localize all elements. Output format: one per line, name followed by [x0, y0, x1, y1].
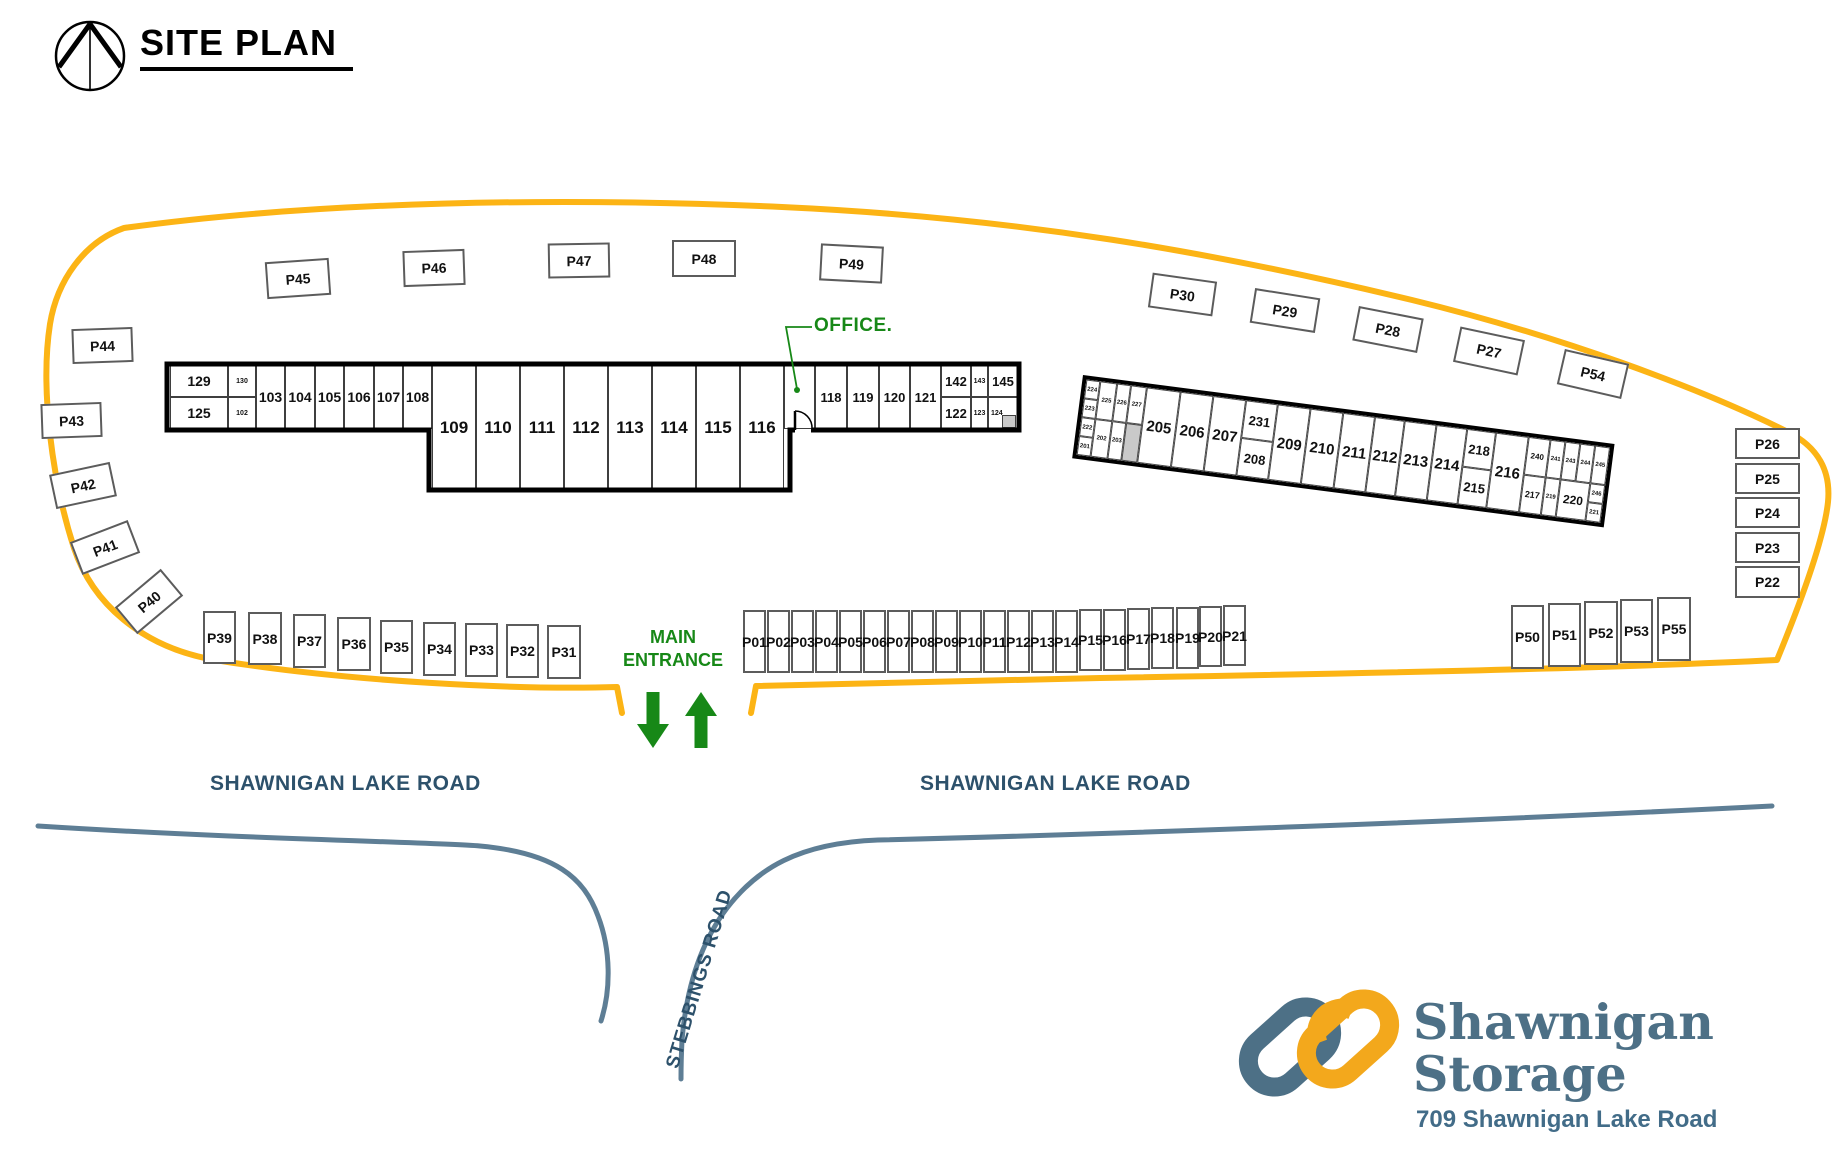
parking-stall-p20: P20	[1199, 606, 1222, 667]
parking-stall-p01: P01	[743, 610, 766, 673]
parking-stall-p33: P33	[465, 623, 498, 677]
unit-118: 118	[815, 365, 847, 429]
parking-stall-p19: P19	[1176, 607, 1199, 669]
parking-stall-p21: P21	[1223, 605, 1246, 666]
parking-stall-p07: P07	[887, 610, 910, 673]
main-entrance-line2: ENTRANCE	[598, 649, 748, 672]
parking-stall-p23: P23	[1735, 532, 1800, 563]
shawnigan-lake-road-line-left	[38, 826, 608, 1021]
parking-stall-p50: P50	[1511, 605, 1544, 669]
parking-stall-p06: P06	[863, 610, 886, 673]
parking-stall-p28: P28	[1352, 306, 1423, 353]
parking-stall-p47: P47	[548, 242, 611, 278]
parking-stall-p48: P48	[672, 240, 736, 277]
parking-stall-p49: P49	[819, 243, 884, 283]
unit-246: 246	[1588, 483, 1605, 504]
background-drawing-layer	[0, 0, 1833, 1153]
parking-stall-p02: P02	[767, 610, 790, 673]
unit-107: 107	[374, 365, 403, 429]
main-entrance-line1: MAIN	[598, 626, 748, 649]
unit-122: 122	[941, 397, 971, 429]
parking-stall-p13: P13	[1031, 610, 1054, 673]
unit-129: 129	[170, 365, 228, 397]
parking-stall-p03: P03	[791, 610, 814, 673]
parking-stall-p54: P54	[1557, 349, 1629, 399]
parking-stall-p25: P25	[1735, 463, 1800, 494]
logo-name-line1: Shawnigan	[1413, 998, 1714, 1047]
unit-108: 108	[403, 365, 432, 429]
parking-stall-p10: P10	[959, 610, 982, 673]
parking-stall-p46: P46	[402, 249, 465, 287]
unit-143: 143	[971, 365, 988, 397]
parking-stall-p37: P37	[293, 614, 326, 668]
shaded-cell	[1002, 415, 1016, 428]
parking-stall-p42: P42	[49, 462, 117, 509]
parking-stall-p51: P51	[1548, 603, 1581, 667]
building-b: 2242232222012252022262032272052062072312…	[1072, 375, 1614, 527]
parking-stall-p36: P36	[337, 617, 371, 671]
parking-stall-p30: P30	[1148, 273, 1217, 317]
parking-stall-p34: P34	[423, 622, 456, 676]
parking-stall-p05: P05	[839, 610, 862, 673]
parking-stall-p27: P27	[1453, 327, 1525, 376]
north-compass-icon	[56, 22, 124, 90]
unit-106: 106	[344, 365, 374, 429]
unit-104: 104	[285, 365, 315, 429]
parking-stall-p18: P18	[1151, 607, 1174, 669]
parking-stall-p29: P29	[1250, 288, 1321, 333]
site-plan-canvas: 2242232222012252022262032272052062072312…	[0, 0, 1833, 1153]
unit-115: 115	[696, 365, 740, 489]
parking-stall-p52: P52	[1584, 601, 1618, 665]
parking-stall-p11: P11	[983, 610, 1006, 673]
page-title: SITE PLAN	[140, 22, 353, 71]
parking-stall-p31: P31	[547, 625, 581, 679]
office-label: OFFICE.	[814, 315, 892, 337]
unit-119: 119	[847, 365, 879, 429]
unit-113: 113	[608, 365, 652, 489]
parking-stall-p45: P45	[265, 258, 331, 299]
parking-stall-p35: P35	[380, 620, 413, 674]
parking-stall-p53: P53	[1620, 599, 1653, 663]
parking-stall-p08: P08	[911, 610, 934, 673]
unit-103: 103	[256, 365, 285, 429]
unit-109: 109	[432, 365, 476, 489]
parking-stall-p17: P17	[1127, 608, 1150, 670]
parking-stall-p32: P32	[506, 624, 539, 678]
unit-116: 116	[740, 365, 784, 489]
parking-stall-p40: P40	[115, 569, 183, 634]
parking-stall-p26: P26	[1735, 428, 1800, 459]
parking-stall-p09: P09	[935, 610, 958, 673]
parking-stall-p55: P55	[1657, 597, 1691, 661]
entrance-arrows-icon	[637, 692, 717, 748]
parking-stall-p44: P44	[71, 327, 133, 364]
unit-142: 142	[941, 365, 971, 397]
road-label-left: SHAWNIGAN LAKE ROAD	[210, 772, 481, 796]
unit-145: 145	[988, 365, 1018, 397]
unit-123: 123	[971, 397, 988, 429]
parking-stall-p22: P22	[1735, 566, 1800, 598]
parking-stall-p04: P04	[815, 610, 838, 673]
unit-102: 102	[228, 397, 256, 429]
parking-stall-p24: P24	[1735, 497, 1800, 528]
unit-105: 105	[315, 365, 344, 429]
parking-stall-p15: P15	[1079, 609, 1102, 671]
logo-address: 709 Shawnigan Lake Road	[1416, 1106, 1717, 1134]
logo-name-line2: Storage	[1413, 1050, 1627, 1099]
road-label-right: SHAWNIGAN LAKE ROAD	[920, 772, 1191, 796]
unit-208: 208	[1236, 438, 1273, 480]
unit-221: 221	[1585, 502, 1602, 523]
office-room	[784, 365, 815, 429]
unit-112: 112	[564, 365, 608, 489]
parking-stall-p38: P38	[248, 612, 282, 665]
unit-114: 114	[652, 365, 696, 489]
unit-120: 120	[879, 365, 910, 429]
stebbings-road-label: STEBBINGS ROAD	[660, 880, 740, 1078]
parking-stall-p43: P43	[40, 402, 102, 439]
unit-121: 121	[910, 365, 941, 429]
parking-stall-p41: P41	[70, 520, 140, 575]
parking-stall-p16: P16	[1103, 609, 1126, 671]
unit-231: 231	[1241, 400, 1278, 442]
unit-130: 130	[228, 365, 256, 397]
parking-stall-p12: P12	[1007, 610, 1030, 673]
foreground-drawing-layer	[0, 0, 1833, 1153]
parking-stall-p39: P39	[203, 611, 236, 664]
logo-chain-icon	[1238, 988, 1401, 1098]
parking-stall-p14: P14	[1055, 610, 1078, 673]
unit-111: 111	[520, 365, 564, 489]
unit-110: 110	[476, 365, 520, 489]
unit-125: 125	[170, 397, 228, 429]
main-entrance-label: MAIN ENTRANCE	[598, 626, 748, 671]
